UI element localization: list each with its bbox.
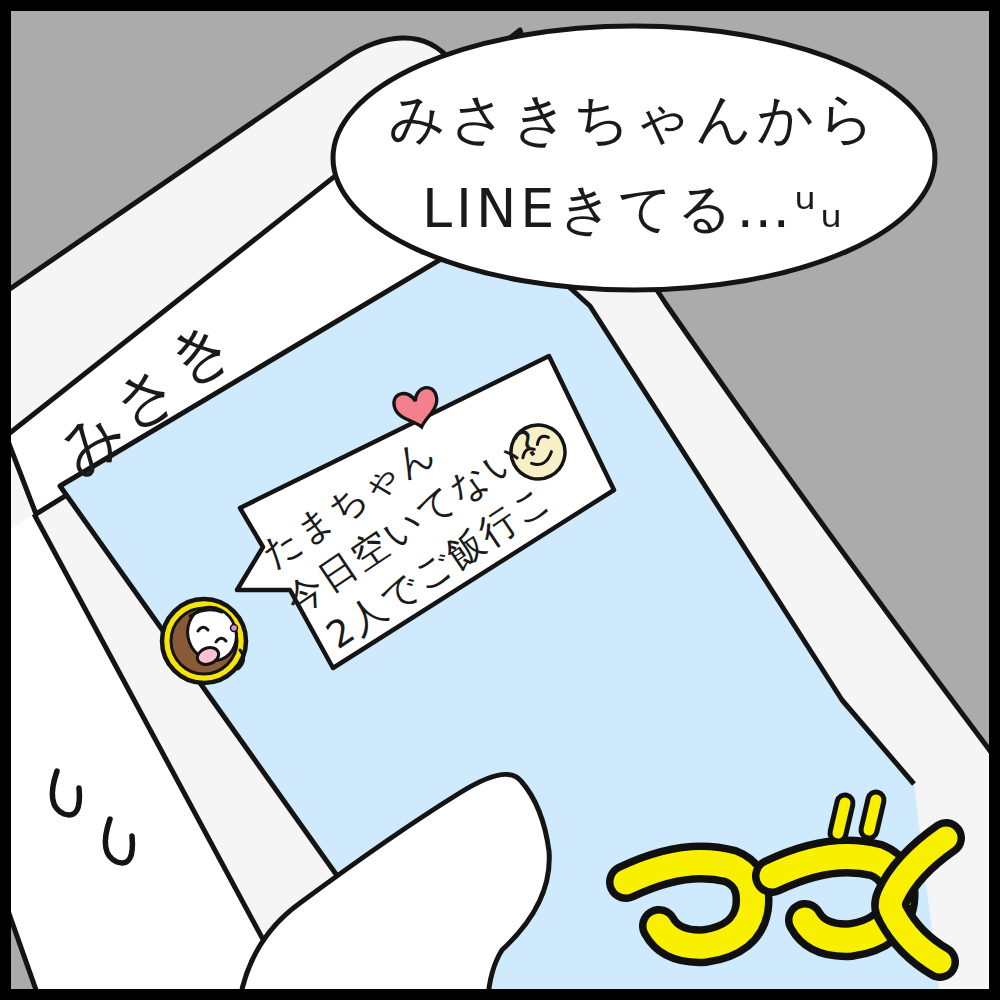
narration-line-2: LINEきてる…ᵘᵤ: [334, 164, 934, 254]
girl-avatar-icon: [162, 599, 246, 683]
comic-panel: みさきちゃんから LINEきてる…ᵘᵤ みさき たまちゃん 今日空いてない? 2…: [0, 0, 1000, 1000]
avatar-earring: [231, 625, 238, 632]
narration-line-1: みさきちゃんから: [334, 74, 934, 164]
narration-text: みさきちゃんから LINEきてる…ᵘᵤ: [334, 74, 934, 254]
